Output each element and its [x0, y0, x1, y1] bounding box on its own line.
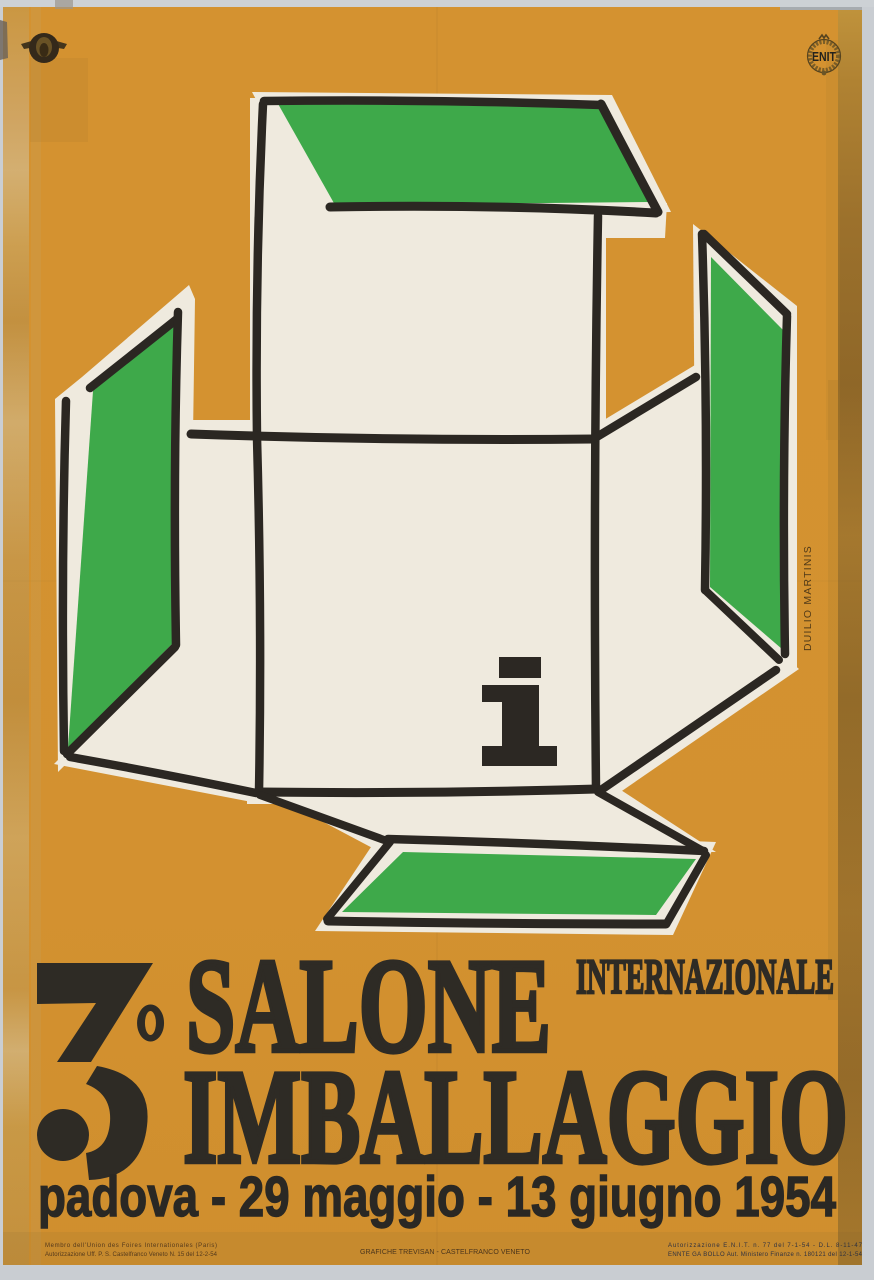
svg-text:Autorizzazione Uff. P. S. Cast: Autorizzazione Uff. P. S. Castelfranco V…	[45, 1252, 218, 1258]
svg-text:padova - 29 maggio - 13 giugno: padova - 29 maggio - 13 giugno 1954	[38, 1165, 836, 1229]
svg-text:ENNTE GA BOLLO Aut. Ministero: ENNTE GA BOLLO Aut. Ministero Finanze n.…	[668, 1252, 863, 1258]
svg-text:GRAFICHE TREVISAN - CASTELFRAN: GRAFICHE TREVISAN - CASTELFRANCO VENETO	[360, 1249, 531, 1256]
svg-text:ENIT: ENIT	[812, 49, 836, 64]
svg-text:Membro dell'Union des Foires I: Membro dell'Union des Foires Internation…	[45, 1243, 217, 1249]
svg-text:Autorizzazione E.N.I.T. n. 77: Autorizzazione E.N.I.T. n. 77 del 7-1-54…	[668, 1243, 863, 1249]
svg-text:DUILIO MARTINIS: DUILIO MARTINIS	[803, 545, 814, 651]
svg-text:INTERNAZIONALE: INTERNAZIONALE	[576, 948, 834, 1004]
